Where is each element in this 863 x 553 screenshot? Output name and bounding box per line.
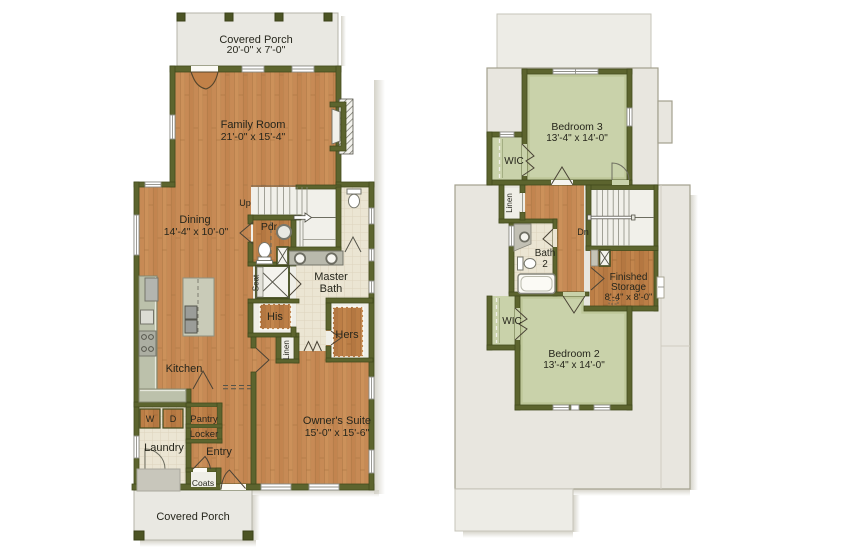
svg-text:Coats: Coats [192,478,214,488]
svg-text:Entry: Entry [206,446,232,458]
svg-text:Locker: Locker [190,429,219,440]
svg-text:Family Room: Family Room [221,119,286,131]
svg-text:Pdr: Pdr [261,221,278,233]
svg-text:Master: Master [314,271,348,283]
svg-text:Dining: Dining [179,214,210,226]
svg-text:Up: Up [239,198,251,208]
svg-text:Linen: Linen [282,340,291,360]
svg-text:8'-4" x 8'-0": 8'-4" x 8'-0" [605,292,653,303]
svg-text:WIC: WIC [502,316,521,327]
svg-text:Bedroom 2: Bedroom 2 [548,348,600,360]
svg-text:Owner's Suite: Owner's Suite [303,415,371,427]
svg-text:W: W [146,414,155,424]
svg-text:His: His [267,311,283,323]
svg-text:Linen: Linen [505,193,514,213]
svg-text:Bedroom 3: Bedroom 3 [551,121,603,133]
svg-text:15'-0" x 15'-6": 15'-0" x 15'-6" [305,427,370,439]
svg-text:Covered Porch: Covered Porch [156,511,229,523]
svg-text:D: D [170,414,177,424]
svg-text:20'-0" x 7'-0": 20'-0" x 7'-0" [227,44,286,56]
svg-text:Bath: Bath [320,283,343,295]
svg-text:WIC: WIC [504,156,523,167]
svg-text:Hers: Hers [335,329,359,341]
svg-text:Laundry: Laundry [144,442,184,454]
svg-text:Kitchen: Kitchen [166,363,203,375]
svg-text:21'-0" x 15'-4": 21'-0" x 15'-4" [221,131,286,143]
svg-text:Bath: Bath [535,248,556,259]
svg-text:13'-4" x 14'-0": 13'-4" x 14'-0" [543,360,605,371]
svg-text:Seat: Seat [252,274,261,291]
svg-text:14'-4" x 10'-0": 14'-4" x 10'-0" [164,226,229,238]
svg-text:Dn: Dn [577,227,589,237]
svg-text:Pantry: Pantry [190,414,218,425]
svg-text:2: 2 [542,259,548,270]
svg-text:13'-4" x 14'-0": 13'-4" x 14'-0" [546,133,608,144]
